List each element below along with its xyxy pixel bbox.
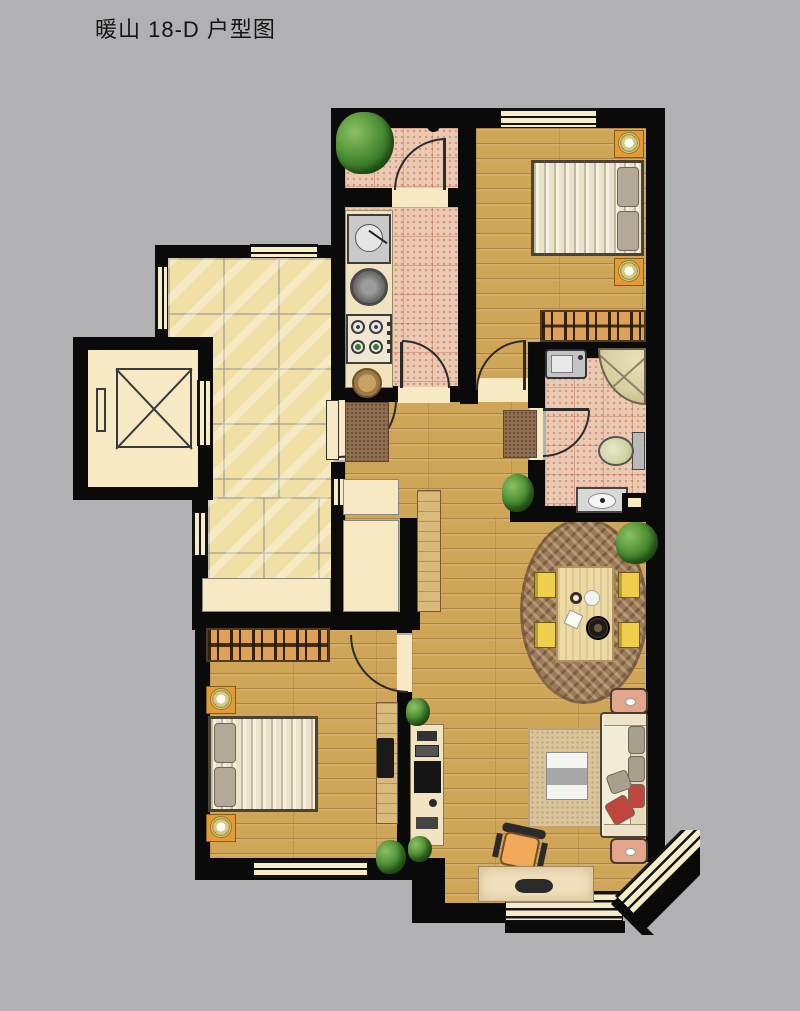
wall-exterior-right <box>646 108 665 862</box>
window-master-bottom <box>253 860 368 878</box>
dining-table <box>556 566 614 662</box>
stove-burner <box>369 320 383 334</box>
sofa-armrest <box>604 824 646 836</box>
nightstand-lamp <box>210 816 232 838</box>
pillow <box>617 211 639 251</box>
wardrobe-master <box>206 628 330 662</box>
bed-secondary <box>531 160 644 256</box>
wall-entry-closet-stub <box>400 518 417 612</box>
dining-chair <box>618 622 640 648</box>
tv <box>377 738 394 778</box>
window-bedroom2-top <box>500 108 597 128</box>
bathroom-floor-drain <box>622 493 648 513</box>
wall-master-right-upper <box>397 612 412 633</box>
door-leaf-balcony <box>443 140 446 190</box>
dining-cup <box>570 592 582 604</box>
dining-chair <box>534 572 556 598</box>
door-leaf-bathroom <box>543 408 589 411</box>
kitchen-pot <box>350 268 388 306</box>
dining-chair <box>534 622 556 648</box>
elevator-car <box>116 368 192 448</box>
kitchen-cutting-board <box>352 368 382 398</box>
corridor-cabinet <box>202 578 331 612</box>
door-leaf-bedroom2 <box>523 342 526 390</box>
door-threshold-kitchen <box>398 387 450 403</box>
end-table <box>610 838 648 864</box>
entry-door-mat <box>345 402 389 462</box>
end-table-decor <box>625 698 636 706</box>
kitchen-stove <box>346 314 392 364</box>
door-leaf-entry <box>326 400 339 460</box>
wall-bathroom-left-upper <box>528 342 545 408</box>
sofa <box>600 712 648 838</box>
nightstand-lamp <box>210 688 232 710</box>
elevator-door <box>197 380 212 446</box>
entry-closet-tall <box>343 520 399 612</box>
washing-machine-knob <box>578 355 583 360</box>
entry-closet-small <box>343 479 399 515</box>
wall-kitchen-bedroom-divider <box>458 128 476 402</box>
bed-master <box>208 716 318 812</box>
sofa-pillow-gray <box>628 726 645 754</box>
wall-bottom-step <box>412 858 445 923</box>
washing-machine-lid <box>551 355 573 373</box>
desk-shelf-item <box>417 731 437 741</box>
balcony-drain-dot <box>427 119 440 132</box>
bathroom-sink-faucet <box>600 498 605 503</box>
nightstand-lamp <box>618 132 640 154</box>
coffee-table <box>546 752 588 800</box>
desk-item <box>416 817 438 829</box>
bathroom-sink <box>576 487 628 513</box>
bottom-desk <box>478 866 594 902</box>
sofa-armrest <box>604 714 646 726</box>
entry-partition-cabinet <box>417 490 441 612</box>
kitchen-sink <box>347 214 391 264</box>
stove-burner <box>369 340 383 354</box>
bathroom-door-mat <box>503 410 537 458</box>
pillow <box>214 767 236 807</box>
pillow <box>617 167 639 207</box>
coffee-table-band <box>547 768 587 785</box>
desk-mouse <box>429 799 437 807</box>
door-leaf-kitchen <box>400 342 403 388</box>
pillow <box>214 723 236 763</box>
wall-living-bottom <box>445 903 510 923</box>
sofa-pillow-gray <box>628 756 645 782</box>
floor-plan-page: 暖山 18-D 户型图 <box>0 0 800 1011</box>
stove-burner <box>351 320 365 334</box>
desk-keyboard <box>415 745 439 757</box>
wall-kitchen-bottom-right <box>450 386 460 402</box>
stove-burner <box>351 340 365 354</box>
dining-bowl <box>586 616 610 640</box>
stove-knobs <box>387 322 391 356</box>
floor-plan <box>0 0 800 1011</box>
window-corridor-top <box>250 244 318 258</box>
desk-monitor <box>414 761 441 793</box>
end-table <box>610 688 648 714</box>
elevator-handle <box>96 388 106 432</box>
dining-plate <box>584 590 600 606</box>
dining-chair <box>618 572 640 598</box>
wall-balcony-divider-left <box>331 188 392 207</box>
toilet-bowl <box>598 436 634 466</box>
washing-machine <box>545 349 587 379</box>
end-table-decor <box>625 848 636 856</box>
door-threshold-balcony <box>392 188 448 207</box>
wall-bedroom2-bottom-left <box>460 390 478 404</box>
bathroom-floor-drain-inner <box>628 498 641 507</box>
window-corridor-left <box>155 266 168 330</box>
wardrobe-secondary <box>540 310 646 342</box>
computer-desk <box>410 724 444 846</box>
bottom-desk-keyboard <box>515 879 553 893</box>
nightstand-lamp <box>618 260 640 282</box>
window-corridor-left-lower <box>192 512 208 556</box>
